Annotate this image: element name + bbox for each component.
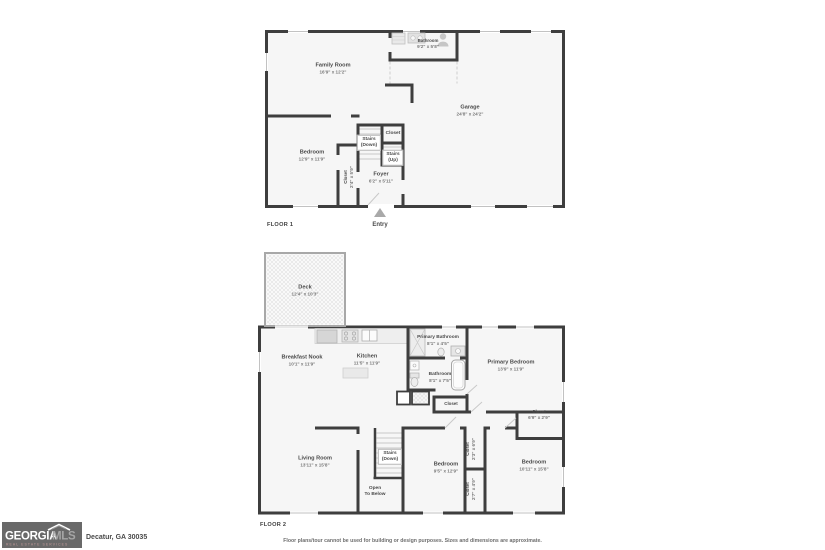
room-label-breakfast-nook: Breakfast Nook 10'1" x 11'9" <box>281 354 322 367</box>
label-stairs-up-f1: Stairs (Up) <box>382 150 403 166</box>
room-label-bedroom-f1: Bedroom 12'9" x 11'9" <box>299 149 326 162</box>
room-label-bathroom-f2: Bathroom 8'1" x 7'5" <box>429 372 452 384</box>
georgia-mls-logo-graphic: GEORGIA MLS REAL ESTATE SERVICES <box>2 522 82 548</box>
label-closet-mid-bottom: Closet 2'7" x 4'9" <box>465 478 477 500</box>
entry-arrow-icon <box>374 208 386 217</box>
room-label-garage: Garage 24'8" x 24'2" <box>457 104 484 117</box>
toilet-icon <box>411 378 418 387</box>
label-closet-hall-f1: Closet <box>386 131 401 137</box>
stove-icon <box>342 330 358 342</box>
label-open-to-below: Open To Below <box>365 486 386 498</box>
label-stairs-down-f1: Stairs (Down) <box>357 135 381 151</box>
georgia-mls-logo: GEORGIA MLS REAL ESTATE SERVICES <box>2 522 82 550</box>
floorplan-page: Family Room 16'9" x 12'2" Bathroom 9'2" … <box>0 0 825 550</box>
fridge-icon <box>317 330 337 343</box>
room-label-bathroom-f1: Bathroom 9'2" x 5'8" <box>417 38 439 50</box>
storage-box <box>397 392 410 405</box>
room-label-bedroom-right: Bedroom 10'11" x 15'8" <box>519 459 548 472</box>
floor1-title: FLOOR 1 <box>267 222 293 228</box>
storage-box-hatched <box>412 392 429 405</box>
disclaimer-text: Floor plans/tour cannot be used for buil… <box>0 538 825 544</box>
room-label-bedroom-mid: Bedroom 9'5" x 12'9" <box>434 461 459 474</box>
room-label-foyer: Foyer 6'2" x 5'11" <box>369 171 393 184</box>
room-label-primary-bedroom: Primary Bedroom 13'9" x 11'9" <box>488 359 535 372</box>
island <box>343 368 368 378</box>
label-closet-bath-f2: Closet <box>444 401 457 407</box>
room-label-kitchen: Kitchen 11'5" x 11'9" <box>354 353 380 366</box>
entry-label: Entry <box>372 222 387 230</box>
label-closet-mid-top: Closet 2'3" x 6'9" <box>465 438 477 460</box>
label-closet-primary: Closet 6'9" x 2'9" <box>528 409 550 421</box>
sink-icon <box>410 361 419 370</box>
label-stairs-down-f2: Stairs (Down) <box>378 449 402 465</box>
floor2-title: FLOOR 2 <box>260 522 286 528</box>
toilet-icon <box>438 348 444 356</box>
room-label-primary-bathroom: Primary Bathroom 8'1" x 4'5" <box>417 335 459 347</box>
floor1-plan-drawing <box>265 30 565 210</box>
room-label-family-room: Family Room 16'9" x 12'2" <box>315 62 350 75</box>
room-label-deck: Deck 12'4" x 10'3" <box>292 284 319 297</box>
room-label-living-room: Living Room 13'11" x 15'8" <box>298 455 332 468</box>
label-closet-bedroom-f1: Closet 2'4" x 5'9" <box>343 166 355 188</box>
